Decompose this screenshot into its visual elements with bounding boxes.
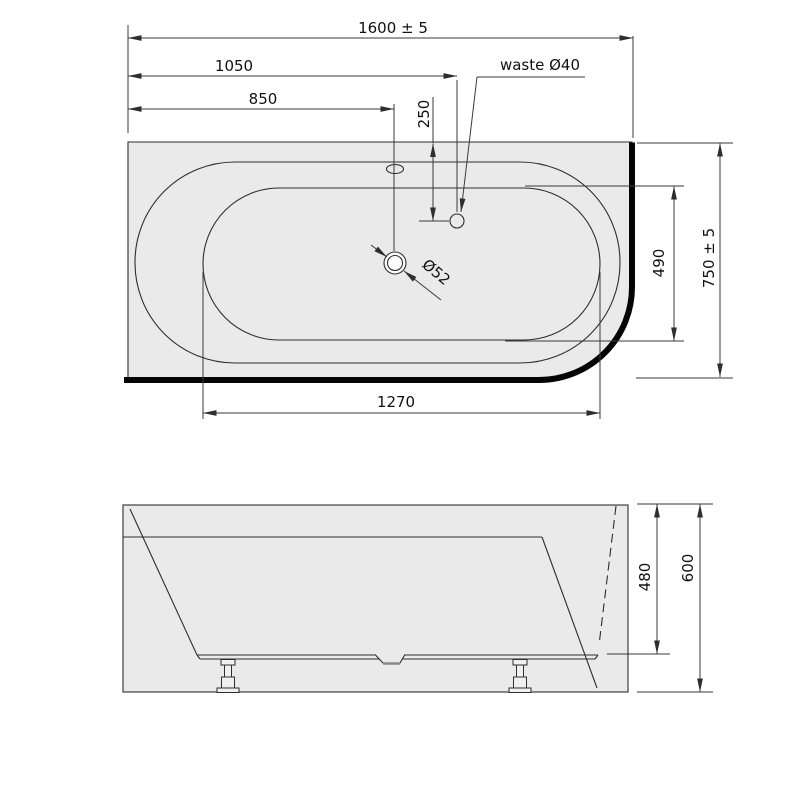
bathtub-dimension-drawing: 1600 ± 5 1050 850 250 waste Ø40 Ø52 [0, 0, 800, 800]
dim-inner-width: 490 [650, 186, 674, 341]
dim-bottom-length-label: 1270 [377, 393, 415, 411]
technical-drawing-page: 1600 ± 5 1050 850 250 waste Ø40 Ø52 [0, 0, 800, 800]
dim-bottom-length: 1270 [203, 393, 600, 413]
front-panel-outline [123, 505, 628, 692]
dim-overall-width-label: 750 ± 5 [700, 228, 718, 288]
dim-waste-offset-x-label: 1050 [215, 57, 253, 75]
dim-overall-length-label: 1600 ± 5 [358, 19, 428, 37]
overflow-hole [387, 165, 404, 174]
dim-waste-offset-y-label: 250 [415, 100, 433, 129]
dim-overall-length: 1600 ± 5 [128, 19, 633, 38]
dim-inner-depth: 480 [636, 504, 657, 654]
dim-drain-offset-x: 850 [128, 90, 394, 109]
dim-drain-offset-x-label: 850 [249, 90, 278, 108]
front-view: 480 600 [123, 504, 713, 693]
dim-overall-width: 750 ± 5 [700, 143, 720, 377]
dim-inner-depth-label: 480 [636, 563, 654, 592]
waste-note-label: waste Ø40 [500, 56, 580, 74]
waste-hole [450, 214, 464, 228]
dim-waste-offset-x: 1050 [128, 57, 457, 76]
dim-overall-height-label: 600 [679, 554, 697, 583]
dim-overall-height: 600 [679, 504, 700, 692]
top-view: 1600 ± 5 1050 850 250 waste Ø40 Ø52 [124, 19, 733, 419]
dim-inner-width-label: 490 [650, 249, 668, 278]
